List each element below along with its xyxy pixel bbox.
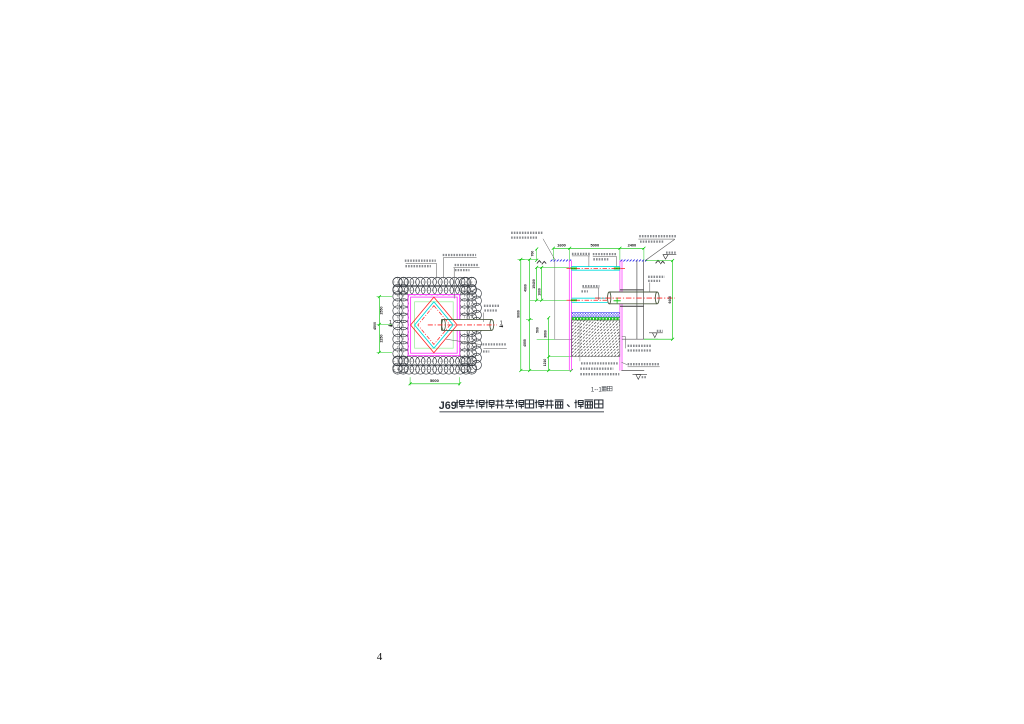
svg-text:2550: 2550 [380,307,384,315]
svg-text:1210: 1210 [543,359,547,367]
svg-text:700: 700 [531,251,535,257]
svg-text:4900: 4900 [524,284,528,292]
svg-text:9000: 9000 [516,310,520,318]
svg-text:1--1: 1--1 [591,386,603,393]
svg-text:3600: 3600 [544,330,548,338]
svg-text:500: 500 [536,327,540,333]
svg-text:5000: 5000 [590,243,599,248]
svg-text:5000: 5000 [430,378,440,383]
svg-text:2250: 2250 [380,335,384,343]
svg-text:15400: 15400 [532,279,536,289]
svg-text:J69: J69 [439,400,457,412]
svg-text:2400: 2400 [628,243,637,248]
svg-text:6400: 6400 [668,296,672,304]
svg-text:4: 4 [377,651,383,663]
svg-text:4500: 4500 [373,322,377,330]
svg-text:1000: 1000 [537,288,541,296]
svg-text:4555: 4555 [523,339,527,347]
svg-text:1600: 1600 [557,243,566,248]
